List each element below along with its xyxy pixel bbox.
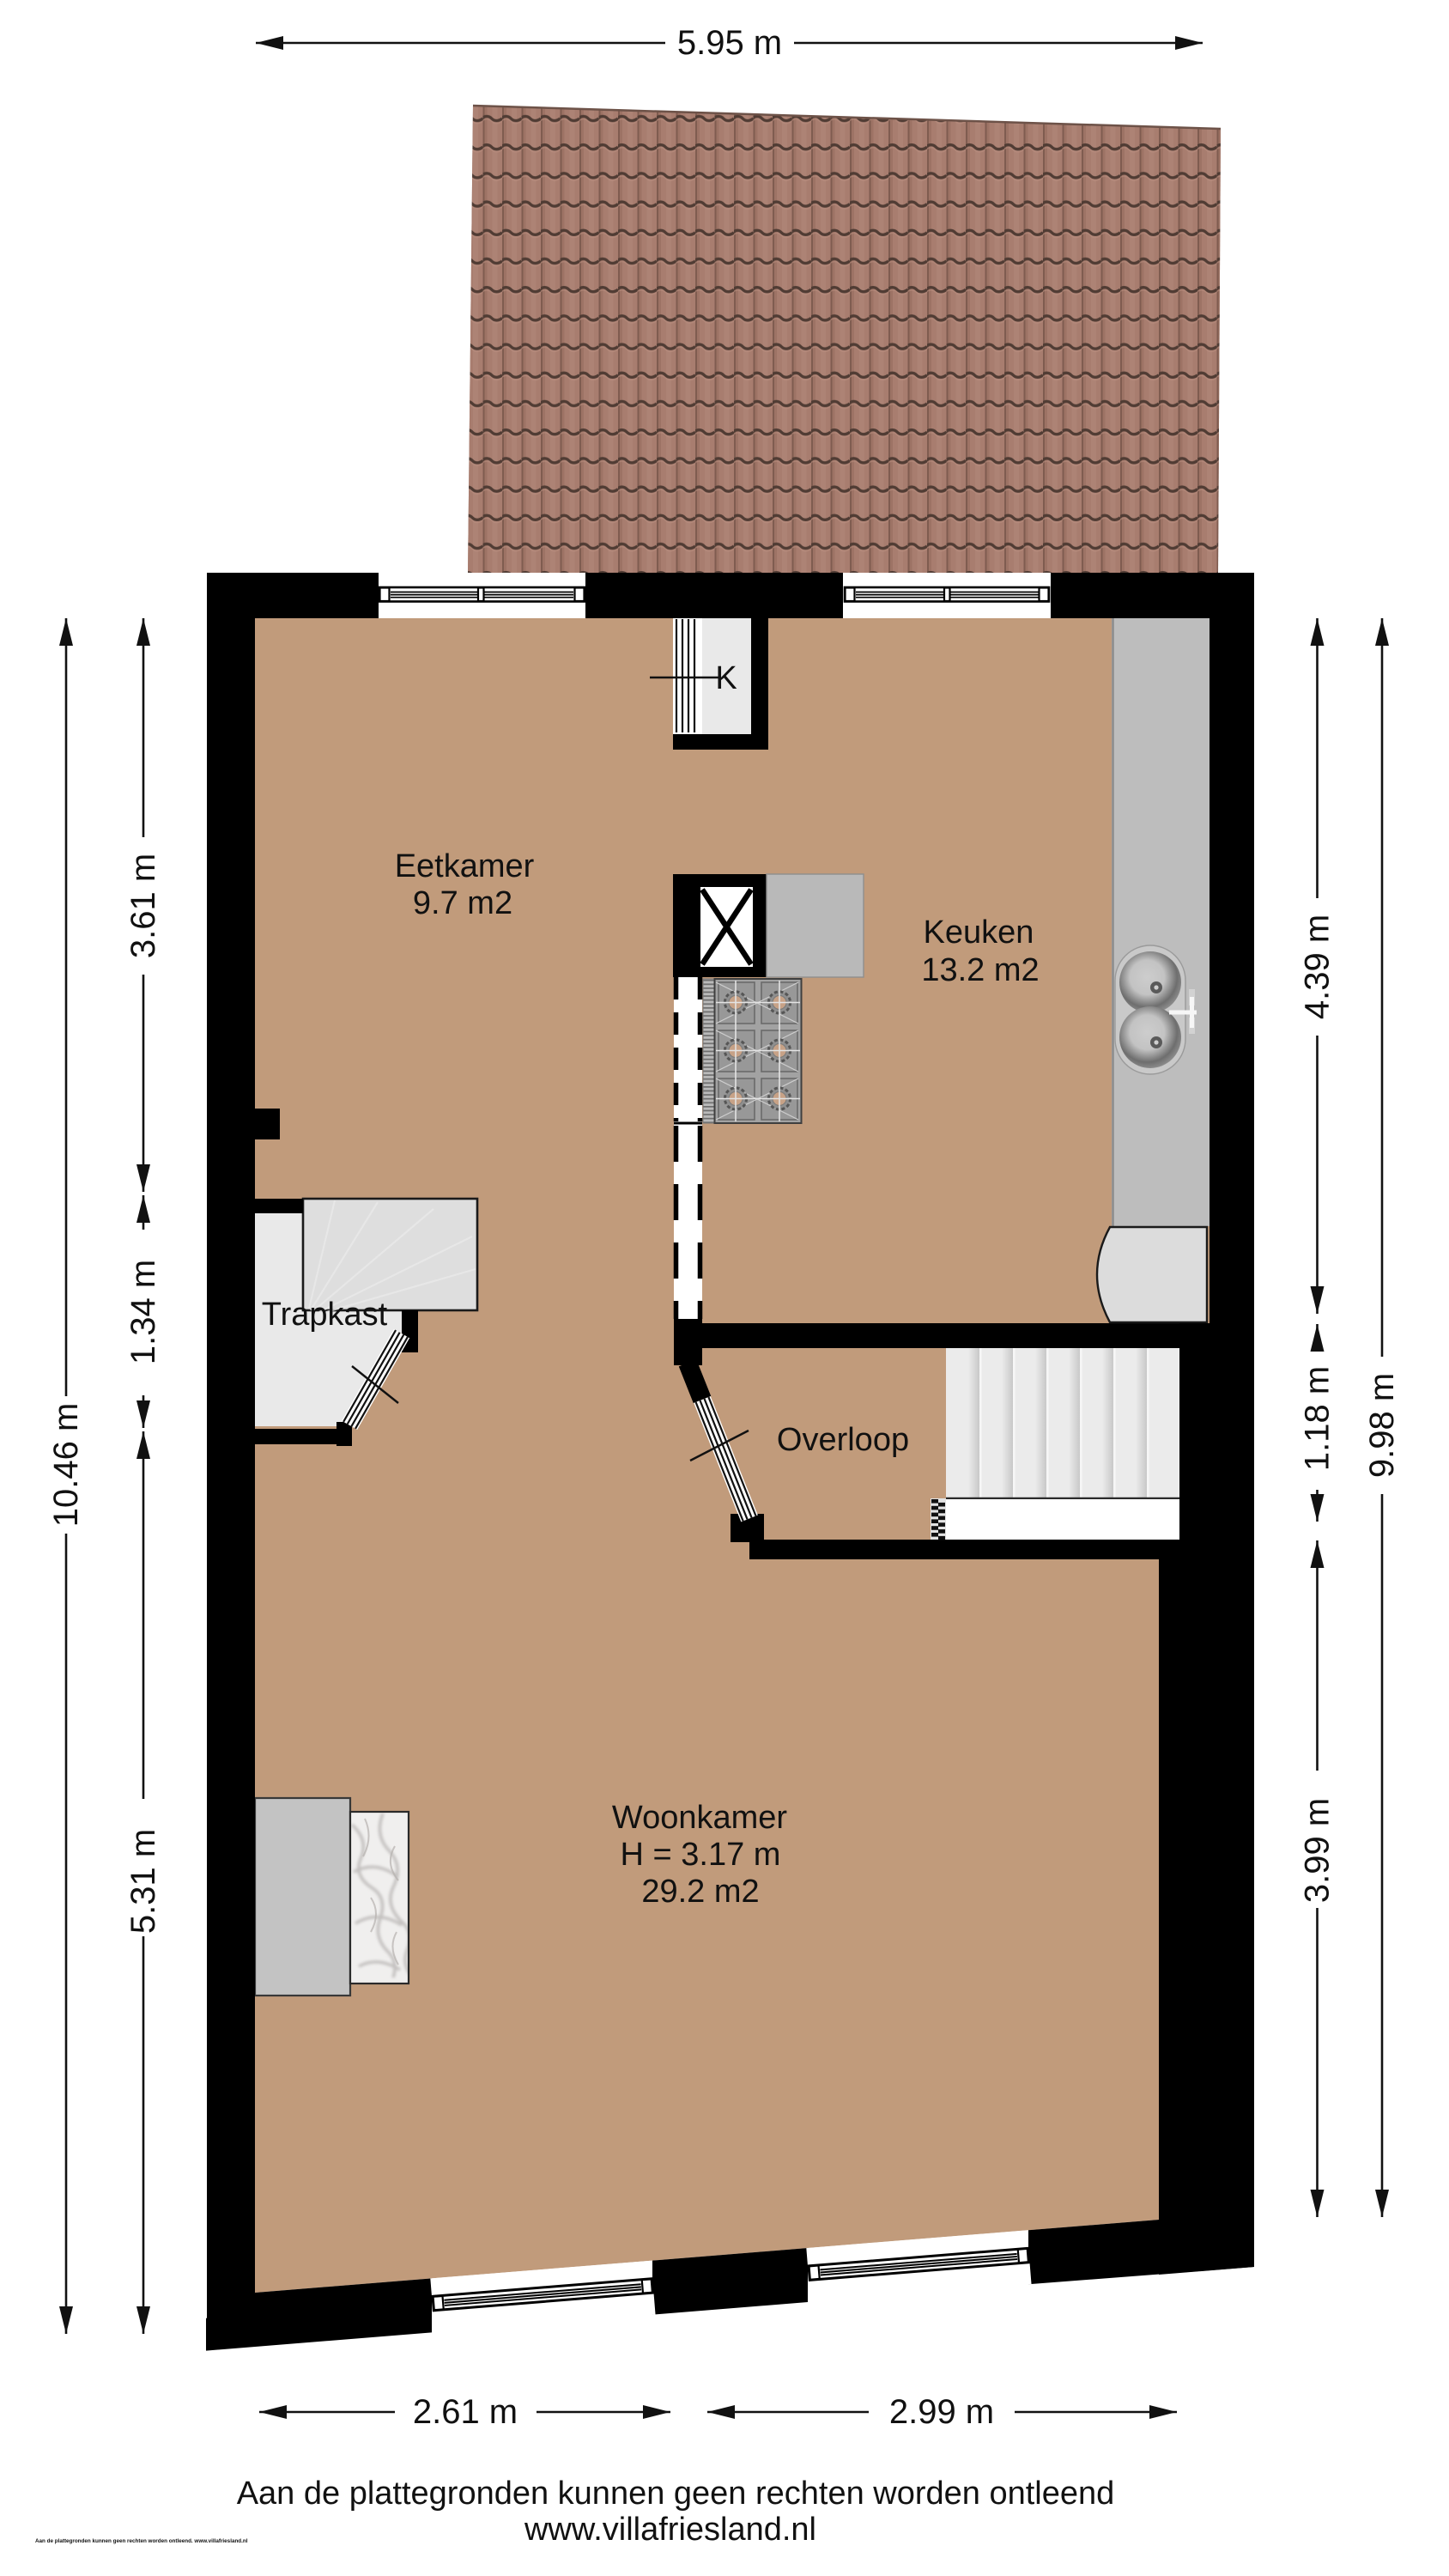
svg-text:Aan de plattegronden kunnen ge: Aan de plattegronden kunnen geen rechten… [35, 2538, 248, 2544]
svg-text:1.18 m: 1.18 m [1299, 1366, 1337, 1471]
svg-text:5.31 m: 5.31 m [124, 1829, 162, 1934]
svg-text:Keuken: Keuken [924, 914, 1034, 951]
svg-text:3.99 m: 3.99 m [1299, 1798, 1337, 1903]
svg-text:29.2 m2: 29.2 m2 [641, 1874, 759, 1910]
svg-text:Woonkamer: Woonkamer [612, 1800, 788, 1836]
svg-text:2.61 m: 2.61 m [413, 2393, 518, 2431]
svg-text:Eetkamer: Eetkamer [395, 848, 535, 884]
svg-text:2.99 m: 2.99 m [889, 2393, 994, 2431]
svg-text:1.34 m: 1.34 m [124, 1260, 162, 1364]
svg-text:Aan de plattegronden kunnen ge: Aan de plattegronden kunnen geen rechten… [237, 2476, 1115, 2512]
svg-text:13.2 m2: 13.2 m2 [921, 952, 1039, 988]
svg-text:3.61 m: 3.61 m [124, 854, 162, 958]
svg-text:9.7 m2: 9.7 m2 [413, 885, 512, 921]
svg-text:Trapkast: Trapkast [262, 1297, 388, 1333]
svg-text:Overloop: Overloop [777, 1422, 909, 1458]
svg-text:www.villafriesland.nl: www.villafriesland.nl [524, 2512, 816, 2548]
svg-text:K: K [715, 660, 737, 696]
svg-text:9.98 m: 9.98 m [1363, 1373, 1401, 1478]
svg-text:H = 3.17 m: H = 3.17 m [621, 1837, 781, 1873]
svg-text:10.46 m: 10.46 m [47, 1403, 85, 1528]
svg-text:4.39 m: 4.39 m [1299, 914, 1337, 1019]
svg-text:5.95 m: 5.95 m [677, 24, 782, 62]
